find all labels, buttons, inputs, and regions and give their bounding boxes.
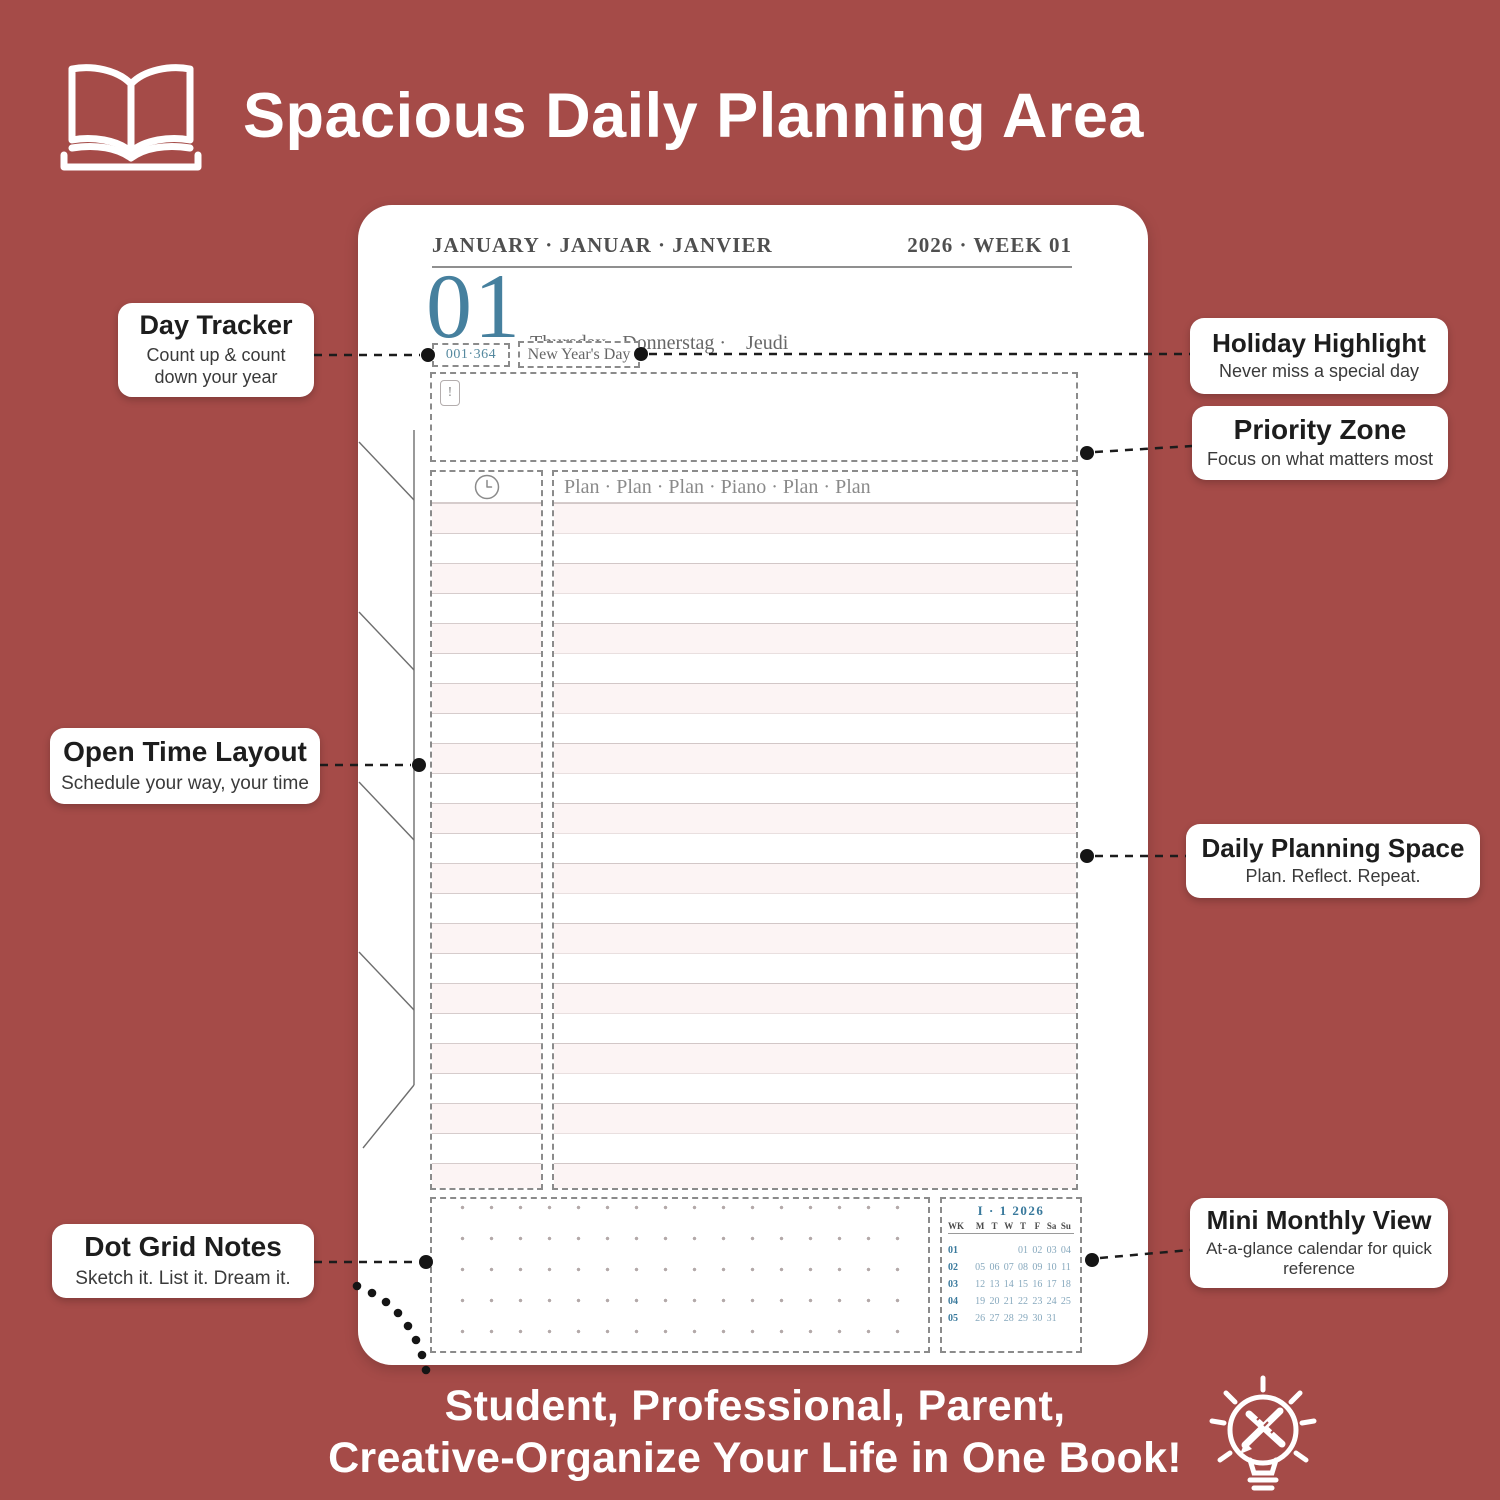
mini-calendar-week-number: 04 bbox=[948, 1293, 973, 1310]
mini-calendar-date: 01 bbox=[1016, 1242, 1030, 1259]
time-column-header bbox=[432, 472, 541, 503]
mini-calendar-column: M bbox=[973, 1221, 987, 1231]
mini-calendar-row: 0205060708091011 bbox=[948, 1259, 1074, 1276]
mini-calendar-date: 18 bbox=[1059, 1276, 1073, 1293]
holiday-label: New Year's Day bbox=[528, 346, 631, 364]
mini-calendar-date: 11 bbox=[1059, 1259, 1073, 1276]
mini-calendar-date: 20 bbox=[987, 1293, 1001, 1310]
mini-calendar-row: 05262728293031 bbox=[948, 1310, 1074, 1327]
mini-calendar-column: W bbox=[1002, 1221, 1016, 1231]
mini-calendar-date: 14 bbox=[1002, 1276, 1016, 1293]
mini-calendar-column: Su bbox=[1059, 1221, 1073, 1231]
mini-calendar-date: 08 bbox=[1016, 1259, 1030, 1276]
mini-calendar-date bbox=[987, 1242, 1001, 1259]
lightbulb-pencil-icon bbox=[1197, 1374, 1329, 1500]
dot-grid bbox=[438, 1205, 922, 1345]
mini-calendar-row: 0101020304 bbox=[948, 1242, 1074, 1259]
mini-calendar-date: 28 bbox=[1002, 1310, 1016, 1327]
mini-calendar-date: 10 bbox=[1044, 1259, 1058, 1276]
mini-calendar-date: 21 bbox=[1002, 1293, 1016, 1310]
mini-calendar-week-number: 05 bbox=[948, 1310, 973, 1327]
mini-calendar-date: 04 bbox=[1059, 1242, 1073, 1259]
mini-calendar-date: 25 bbox=[1059, 1293, 1073, 1310]
mini-calendar-date: 07 bbox=[1002, 1259, 1016, 1276]
mini-calendar-date: 30 bbox=[1030, 1310, 1044, 1327]
day-tracker-box: 001·364 bbox=[432, 343, 510, 367]
mini-calendar-date: 15 bbox=[1016, 1276, 1030, 1293]
clock-icon bbox=[474, 474, 500, 500]
mini-calendar-column: WK bbox=[948, 1221, 973, 1231]
callout-title: Day Tracker bbox=[139, 311, 292, 341]
mini-monthly-calendar: I · 1 2026 WKMTWTFSaSu 01010203040205060… bbox=[940, 1197, 1082, 1353]
callout-holiday-highlight: Holiday Highlight Never miss a special d… bbox=[1190, 318, 1448, 394]
mini-calendar-column: F bbox=[1030, 1221, 1044, 1231]
mini-calendar-date: 13 bbox=[987, 1276, 1001, 1293]
mini-calendar-week-number: 01 bbox=[948, 1242, 973, 1259]
planner-year-week: 2026 · WEEK 01 bbox=[907, 233, 1072, 258]
mini-calendar-date: 05 bbox=[973, 1259, 987, 1276]
callout-subtitle: Never miss a special day bbox=[1219, 361, 1419, 383]
callout-subtitle: Count up & count down your year bbox=[128, 345, 304, 389]
callout-title: Dot Grid Notes bbox=[84, 1232, 282, 1263]
callout-day-tracker: Day Tracker Count up & count down your y… bbox=[118, 303, 314, 397]
mini-calendar-date: 17 bbox=[1044, 1276, 1058, 1293]
mini-calendar-date: 22 bbox=[1016, 1293, 1030, 1310]
callout-daily-planning-space: Daily Planning Space Plan. Reflect. Repe… bbox=[1186, 824, 1480, 898]
mini-calendar-date: 12 bbox=[973, 1276, 987, 1293]
mini-calendar-date: 02 bbox=[1030, 1242, 1044, 1259]
planner-page: JANUARY · JANUAR · JANVIER 2026 · WEEK 0… bbox=[358, 205, 1148, 1365]
callout-subtitle: At-a-glance calendar for quick reference bbox=[1200, 1239, 1438, 1280]
mini-calendar-date: 03 bbox=[1044, 1242, 1058, 1259]
mini-calendar-date: 19 bbox=[973, 1293, 987, 1310]
mini-calendar-row: 0419202122232425 bbox=[948, 1293, 1074, 1310]
mini-calendar-date: 16 bbox=[1030, 1276, 1044, 1293]
mini-calendar-column: T bbox=[987, 1221, 1001, 1231]
callout-priority-zone: Priority Zone Focus on what matters most bbox=[1192, 406, 1448, 480]
planner-infographic: Spacious Daily Planning Area JANUARY · J… bbox=[0, 0, 1500, 1500]
mini-calendar-date: 31 bbox=[1044, 1310, 1058, 1327]
mini-calendar-date: 26 bbox=[973, 1310, 987, 1327]
mini-calendar-date bbox=[1002, 1242, 1016, 1259]
callout-title: Open Time Layout bbox=[63, 737, 307, 768]
mini-calendar-week-number: 03 bbox=[948, 1276, 973, 1293]
callout-mini-monthly-view: Mini Monthly View At-a-glance calendar f… bbox=[1190, 1198, 1448, 1288]
day-tracker-value: 001·364 bbox=[446, 347, 496, 363]
callout-title: Priority Zone bbox=[1234, 415, 1407, 446]
mini-calendar-body: 0101020304020506070809101103121314151617… bbox=[948, 1242, 1074, 1327]
callout-subtitle: Focus on what matters most bbox=[1207, 449, 1433, 471]
mini-calendar-date: 09 bbox=[1030, 1259, 1044, 1276]
mini-calendar-title: I · 1 2026 bbox=[948, 1203, 1074, 1219]
mini-calendar-date: 23 bbox=[1030, 1293, 1044, 1310]
priority-zone-box: ! bbox=[430, 372, 1078, 462]
time-rows bbox=[432, 503, 541, 1188]
mini-calendar-date bbox=[1059, 1310, 1073, 1327]
callout-dot-grid-notes: Dot Grid Notes Sketch it. List it. Dream… bbox=[52, 1224, 314, 1298]
callout-subtitle: Plan. Reflect. Repeat. bbox=[1245, 866, 1420, 888]
callout-title: Mini Monthly View bbox=[1207, 1206, 1432, 1235]
mini-calendar-header: WKMTWTFSaSu bbox=[948, 1221, 1074, 1234]
mini-calendar-date: 29 bbox=[1016, 1310, 1030, 1327]
mini-calendar-date: 06 bbox=[987, 1259, 1001, 1276]
plan-header-label: Plan · Plan · Plan · Piano · Plan · Plan bbox=[554, 476, 871, 499]
header-rule bbox=[432, 266, 1072, 268]
callout-subtitle: Sketch it. List it. Dream it. bbox=[75, 1267, 290, 1290]
callout-title: Daily Planning Space bbox=[1202, 834, 1465, 863]
open-book-icon bbox=[55, 52, 207, 174]
page-title: Spacious Daily Planning Area bbox=[243, 80, 1144, 152]
plan-area-header: Plan · Plan · Plan · Piano · Plan · Plan bbox=[554, 472, 1076, 503]
exclamation-icon: ! bbox=[440, 380, 460, 406]
mini-calendar-week-number: 02 bbox=[948, 1259, 973, 1276]
callout-open-time-layout: Open Time Layout Schedule your way, your… bbox=[50, 728, 320, 804]
mini-calendar-column: Sa bbox=[1044, 1221, 1058, 1231]
plan-rows bbox=[554, 503, 1076, 1188]
callout-subtitle: Schedule your way, your time bbox=[61, 772, 309, 795]
mini-calendar-date: 24 bbox=[1044, 1293, 1058, 1310]
callout-title: Holiday Highlight bbox=[1212, 329, 1426, 358]
mini-calendar-column: T bbox=[1016, 1221, 1030, 1231]
holiday-box: New Year's Day bbox=[518, 341, 640, 368]
mini-calendar-date: 27 bbox=[987, 1310, 1001, 1327]
time-column bbox=[430, 470, 543, 1190]
mini-calendar-row: 0312131415161718 bbox=[948, 1276, 1074, 1293]
plan-area: Plan · Plan · Plan · Piano · Plan · Plan bbox=[552, 470, 1078, 1190]
mini-calendar-date bbox=[973, 1242, 987, 1259]
dot-grid-notes-box bbox=[430, 1197, 930, 1353]
